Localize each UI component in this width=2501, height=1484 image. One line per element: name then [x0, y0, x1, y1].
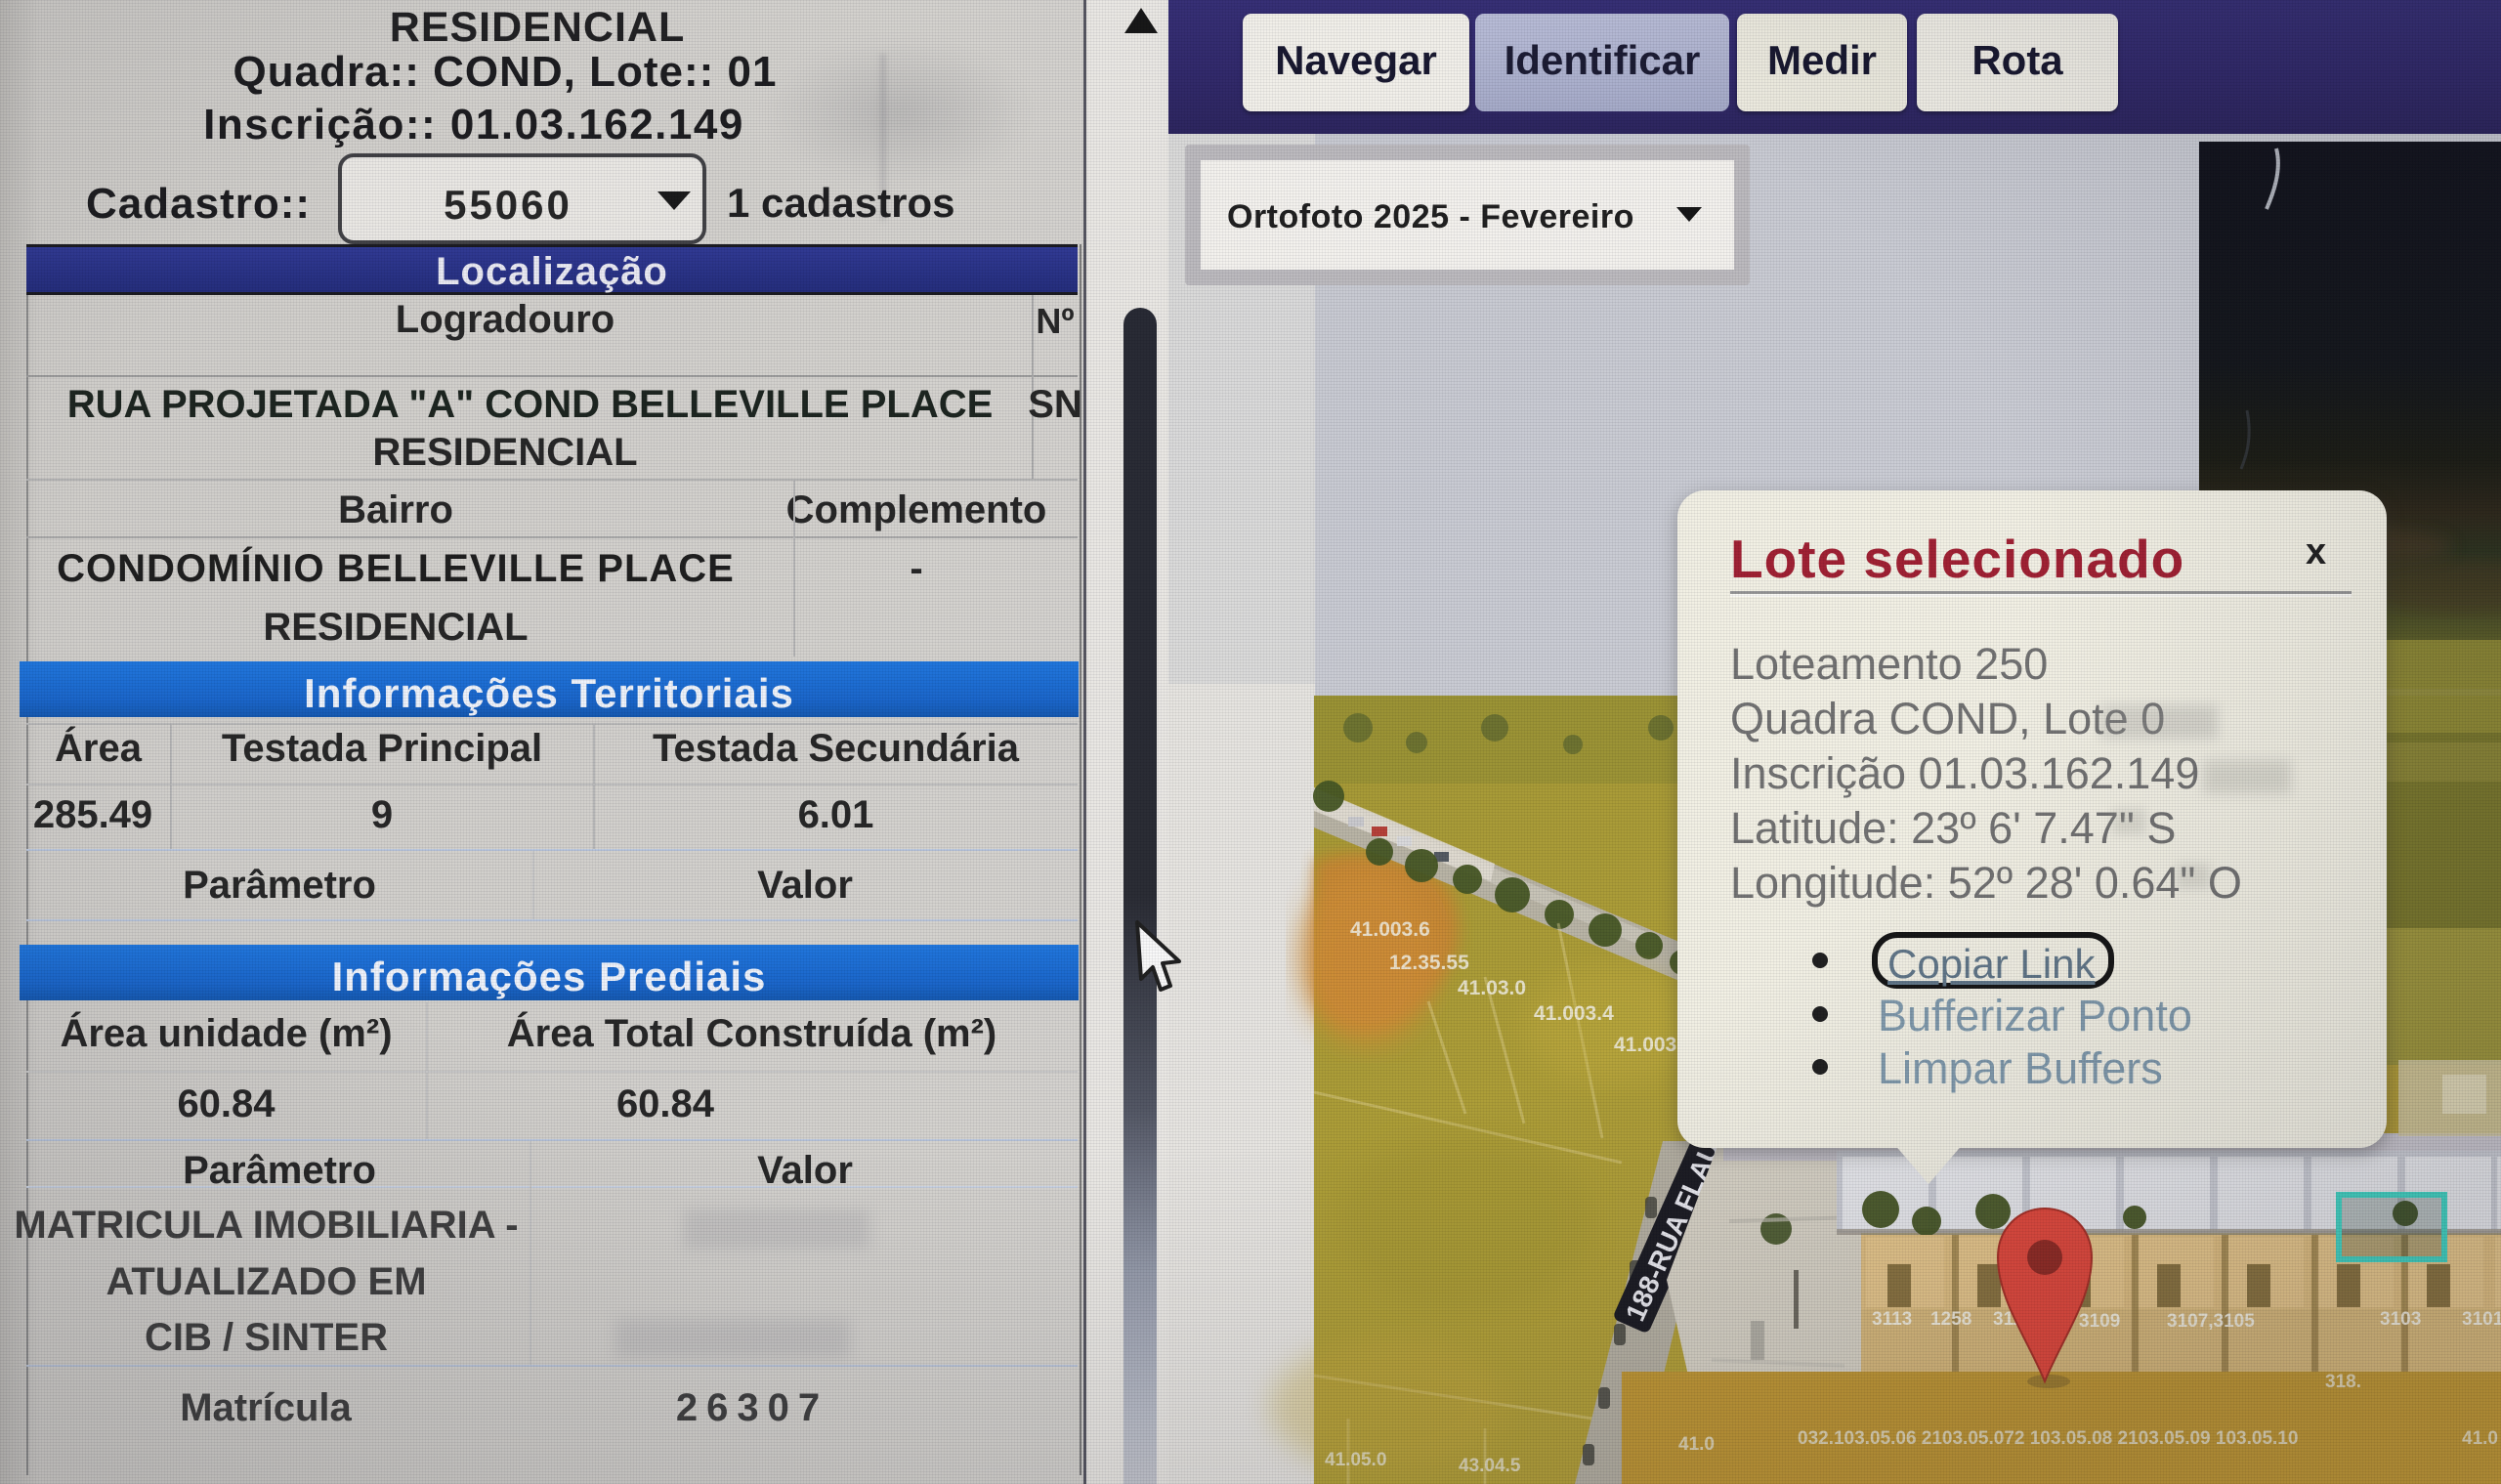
- svg-text:41.05.0: 41.05.0: [1325, 1450, 1386, 1470]
- svg-text:43.04.5: 43.04.5: [1459, 1456, 1521, 1476]
- svg-text:3101: 3101: [2462, 1309, 2501, 1330]
- svg-text:032.103.05.06 2103.05.072 10: 032.103.05.06 2103.05.072 103.05.08 2103…: [1798, 1428, 2298, 1449]
- svg-text:3103: 3103: [2380, 1309, 2421, 1330]
- svg-text:1258: 1258: [1930, 1309, 1971, 1330]
- svg-text:41.0: 41.0: [1678, 1434, 1715, 1455]
- svg-text:3109: 3109: [2079, 1311, 2120, 1332]
- svg-text:41.003.6: 41.003.6: [1350, 918, 1430, 941]
- svg-text:41.0: 41.0: [2462, 1428, 2498, 1449]
- svg-text:41.003.4: 41.003.4: [1534, 1002, 1614, 1025]
- svg-text:318.: 318.: [2325, 1372, 2361, 1392]
- svg-text:41.03.0: 41.03.0: [1458, 977, 1526, 999]
- svg-text:3113: 3113: [1872, 1309, 1912, 1330]
- svg-text:3107,3105: 3107,3105: [2167, 1311, 2255, 1332]
- svg-text:12.35.55: 12.35.55: [1389, 952, 1469, 974]
